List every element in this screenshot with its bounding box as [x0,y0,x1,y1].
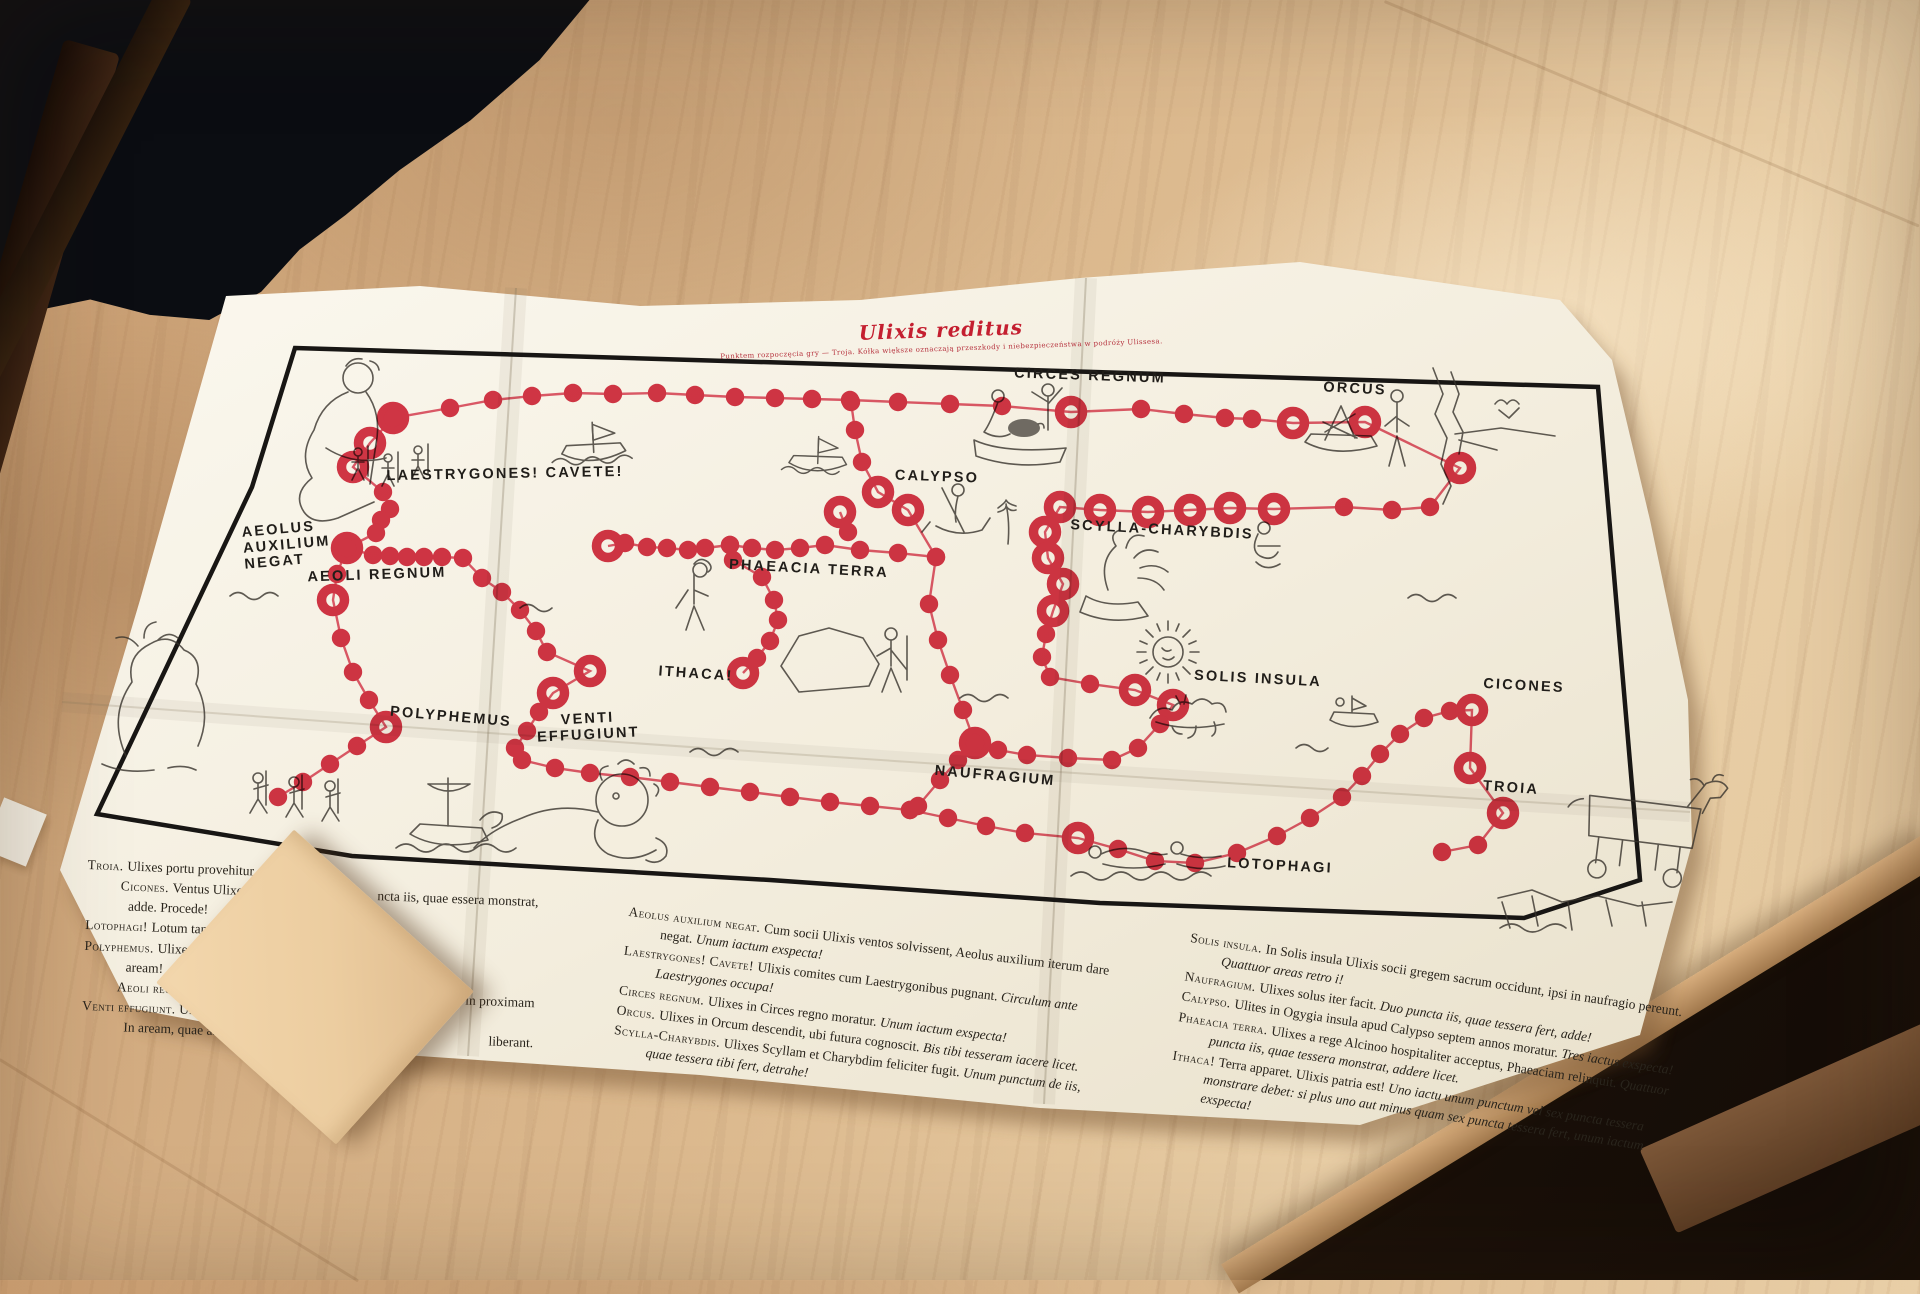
route-dot [920,595,938,613]
route-dot [604,385,622,403]
route-dot [1132,400,1150,418]
route-dot [433,548,451,566]
route-dot [338,539,356,557]
route-dot [1353,767,1371,785]
route-dot [941,395,959,413]
route-dot [1146,852,1164,870]
route-dot [1151,715,1169,733]
route-dot [367,524,385,542]
route-dot [766,389,784,407]
route-dot [791,539,809,557]
route-dot [484,391,502,409]
route-dot [1037,625,1055,643]
route-dot [1469,836,1487,854]
route-dot [1103,751,1121,769]
route-dot [743,539,761,557]
route-dot [511,601,529,619]
route-dot [360,691,378,709]
route-dot [269,788,287,806]
route-dot [441,399,459,417]
route-dot [1301,809,1319,827]
route-dot [1421,498,1439,516]
route-dot [473,569,491,587]
route-dot [398,548,416,566]
route-dot [1243,410,1261,428]
route-dot [679,541,697,559]
route-dot [321,755,339,773]
route-dot [889,393,907,411]
route-dot [696,539,714,557]
route-dot [328,565,346,583]
route-dot [332,629,350,647]
route-dot [839,523,857,541]
route-dot [1033,648,1051,666]
route-dot [538,643,556,661]
route-dot [993,397,1011,415]
route-dot [851,541,869,559]
route-dot [454,549,472,567]
route-dot [939,809,957,827]
route-dot [381,547,399,565]
route-dot [803,390,821,408]
route-dot [954,701,972,719]
route-dot [724,551,742,569]
route-dot [1335,498,1353,516]
route-dot [1383,501,1401,519]
route-dot [753,568,771,586]
route-dot [648,384,666,402]
route-dot [1433,843,1451,861]
route-dot [821,793,839,811]
route-dot [842,393,860,411]
route-dot [889,544,907,562]
route-dot [989,741,1007,759]
route-dot [1268,827,1286,845]
route-dot [1081,675,1099,693]
route-dot [1129,739,1147,757]
route-dot [1228,844,1246,862]
route-dot [658,539,676,557]
route-dot [661,773,679,791]
route-dot [861,797,879,815]
route-dot [929,631,947,649]
route-dot [1109,840,1127,858]
photo-scene: { "board": { "title": "Ulixis reditus", … [0,0,1920,1280]
route-dot [931,771,949,789]
route-dot [415,548,433,566]
route-dot [853,453,871,471]
route-dot [846,421,864,439]
route-dot [493,583,511,601]
route-dot [344,663,362,681]
route-dot [564,384,582,402]
route-dot [941,666,959,684]
route-dot [1333,788,1351,806]
route-dot [581,764,599,782]
route-dot [621,768,639,786]
route-dot [523,387,541,405]
route-dot [1016,824,1034,842]
route-dot [530,703,548,721]
route-dot [966,734,984,752]
route-dot [761,632,779,650]
route-dot [527,622,545,640]
route-dot [546,759,564,777]
route-dot [1059,749,1077,767]
route-dot [384,409,402,427]
route-dot [701,778,719,796]
route-dot [513,751,531,769]
route-dot [638,538,656,556]
route-dot [769,611,787,629]
route-dot [741,783,759,801]
route-dot [374,483,392,501]
route-dot [949,751,967,769]
route-dot [1371,745,1389,763]
route-dot [766,541,784,559]
route-dot [765,591,783,609]
route-dot [977,817,995,835]
route-dot [1041,668,1059,686]
route-dot [1018,746,1036,764]
route-dot [1175,405,1193,423]
route-dot [1216,409,1234,427]
route-dot [348,737,366,755]
route-dot [1186,854,1204,872]
route-dot [816,536,834,554]
route-dot [1415,709,1433,727]
route-dot [364,546,382,564]
route-dot [1391,725,1409,743]
route-dot [726,388,744,406]
route-dot [518,722,536,740]
route-dot [927,548,945,566]
route-dot [909,797,927,815]
route-dot [294,773,312,791]
route-dot [686,386,704,404]
route-dot [781,788,799,806]
